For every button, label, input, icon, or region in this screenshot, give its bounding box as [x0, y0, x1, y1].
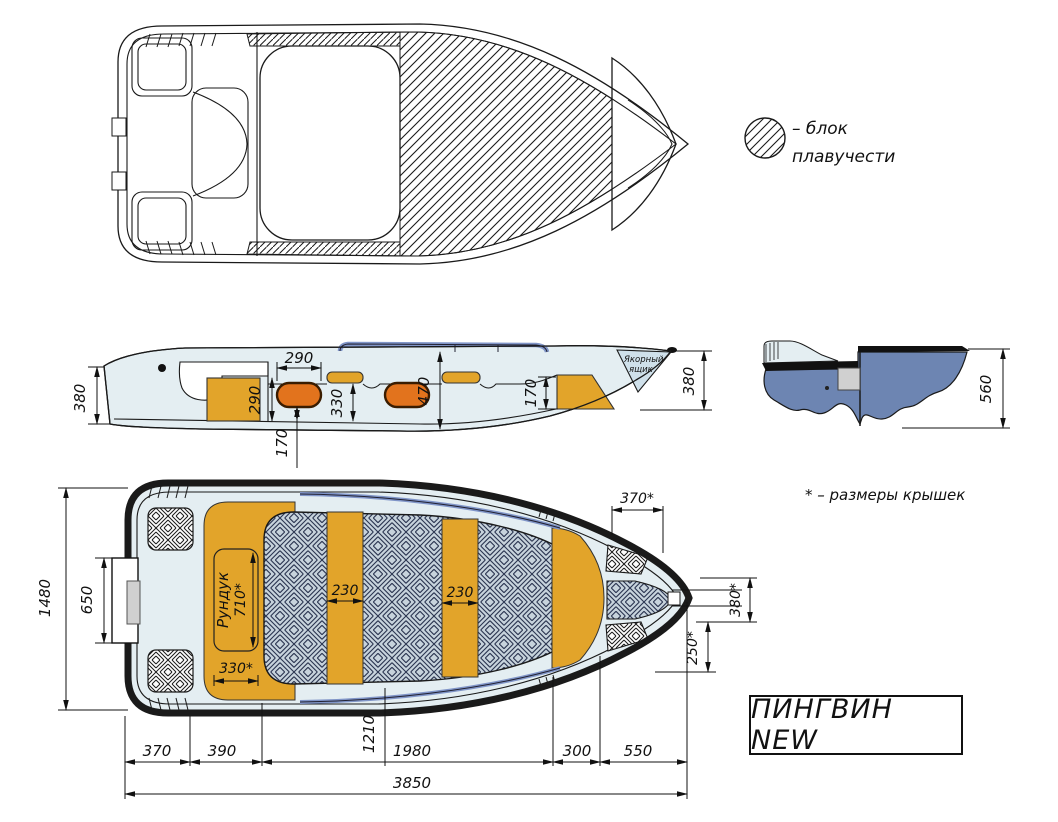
dim-seg1: 370 — [143, 742, 172, 760]
top-view — [112, 24, 688, 264]
side-seat-cushion-1 — [277, 383, 321, 407]
dim-locker-width: 330* — [219, 661, 253, 677]
anchor-box-label-1: Якорный — [623, 355, 664, 365]
side-locker-lid-2 — [442, 372, 480, 383]
plan-motor-pad — [127, 581, 140, 624]
dim-locker-height: 290 — [246, 386, 264, 415]
dim-bow-seat-height: 170 — [522, 379, 540, 408]
dim-transom-recess: 650 — [78, 586, 96, 615]
dim-mid-depth: 330 — [328, 389, 346, 418]
top-view-gunwale-strip-bottom — [247, 242, 400, 256]
side-view — [104, 344, 677, 431]
section-gunwale-cap-right — [858, 346, 970, 352]
stern-fitting — [158, 364, 166, 372]
section-view — [762, 341, 970, 426]
dim-seat-length: 290 — [285, 349, 314, 367]
dim-total: 3850 — [393, 774, 431, 792]
title-box: ПИНГВИН NEW — [749, 695, 963, 755]
section-motor-pad — [838, 368, 860, 390]
legend-line1: – блок — [792, 119, 849, 139]
locker-label: Рундук — [214, 572, 232, 628]
dim-beam: 1480 — [36, 579, 54, 617]
top-view-gunwale-strip-top — [247, 32, 400, 46]
model-title: ПИНГВИН NEW — [751, 694, 961, 756]
dim-transom-height: 380 — [71, 384, 89, 413]
dim-mid: 1210 — [360, 715, 378, 753]
dim-bow-lid-height: 380* — [728, 583, 744, 617]
plan-view — [112, 483, 689, 713]
dim-seg4: 300 — [563, 742, 592, 760]
dim-section-height: 560 — [977, 375, 995, 404]
legend: – блок плавучести — [745, 118, 895, 167]
section-drain-dot — [825, 386, 829, 390]
cockpit-sundeck — [260, 46, 400, 240]
transom-step-1 — [112, 118, 126, 136]
bow-light — [667, 347, 677, 353]
dim-cockpit-depth: 470 — [415, 377, 433, 406]
transom-step-2 — [112, 172, 126, 190]
buoyancy-hatch-symbol — [745, 118, 785, 158]
anchor-box-label-2: ящик — [629, 365, 654, 375]
legend-line2: плавучести — [792, 147, 895, 167]
dim-seg2: 390 — [208, 742, 237, 760]
plan-corner-block-bottom — [148, 650, 193, 692]
dim-seg5: 550 — [624, 742, 653, 760]
dim-bow-lid-width: 370* — [620, 491, 654, 507]
plan-corner-block-top — [148, 508, 193, 550]
dim-locker-length: 710* — [233, 583, 249, 617]
boat-drawing-sheet: – блок плавучести 380 290 290 170 3 — [0, 0, 1058, 822]
dim-thwart1: 230 — [332, 583, 359, 599]
dim-bow-height: 380 — [680, 367, 698, 396]
dim-seat-height: 170 — [273, 429, 291, 458]
section-seatback — [764, 341, 838, 363]
dim-seg3: 1980 — [393, 742, 431, 760]
dim-thwart2: 230 — [447, 585, 474, 601]
plan-bow-roller — [668, 592, 680, 605]
asterisk-note: * – размеры крышек — [805, 486, 965, 504]
side-locker-lid-1 — [327, 372, 363, 383]
top-view-bow-white-segment — [612, 58, 676, 230]
